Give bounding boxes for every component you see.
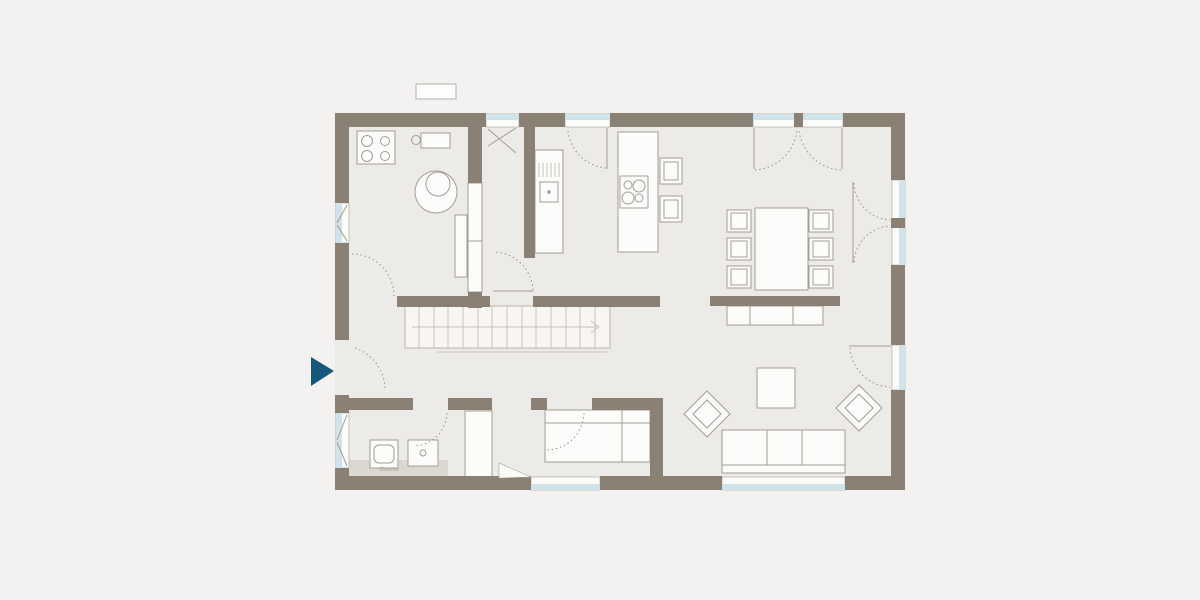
wall-top [519,113,565,127]
wall-right [891,113,905,180]
wall-left [335,243,349,340]
wall-left [335,395,349,413]
tall-cabinet [465,411,492,477]
wall-shelf [455,215,467,277]
wall-interior [524,127,535,258]
floor-plan: Dusche [0,0,1200,600]
window-glass [336,413,342,468]
chimney [416,84,456,99]
page-background: Dusche [0,0,1200,600]
shower-tray [408,440,438,466]
wall-top [335,113,486,127]
wall-interior [533,296,660,307]
wall-right [891,390,905,490]
dining-table [755,208,808,290]
coffee-table [757,368,795,408]
wall-interior [448,398,492,410]
shower-floor-label: Dusche [380,467,399,473]
wall-left [335,468,349,490]
wall-interior [397,296,490,307]
sideboard [727,306,823,325]
french-door-mullion [891,218,905,228]
wall-top [610,113,753,127]
wall-interior [468,127,482,183]
wall-interior [531,398,547,410]
wall-left [335,113,349,203]
window-glass [722,484,845,490]
window-glass [336,203,342,243]
terrace-door-glass [899,345,905,390]
wall-bottom [600,476,722,490]
wall-right [891,265,905,345]
wall-interior [592,398,655,410]
kitchen-sink-drain [547,190,551,194]
french-door-mullion [794,113,803,127]
wall-interior [349,398,413,410]
wardrobe [545,410,650,462]
wall-interior [650,398,663,476]
window-glass [565,114,610,120]
round-table [415,171,457,213]
hall-cabinet [468,241,482,292]
wall-interior [710,296,840,306]
sofa [722,430,845,473]
hall-cabinet [468,183,482,241]
window-glass [531,484,600,490]
entrance-arrow [311,357,334,386]
utility-counter [421,133,450,148]
entry-door-glass [486,114,519,120]
